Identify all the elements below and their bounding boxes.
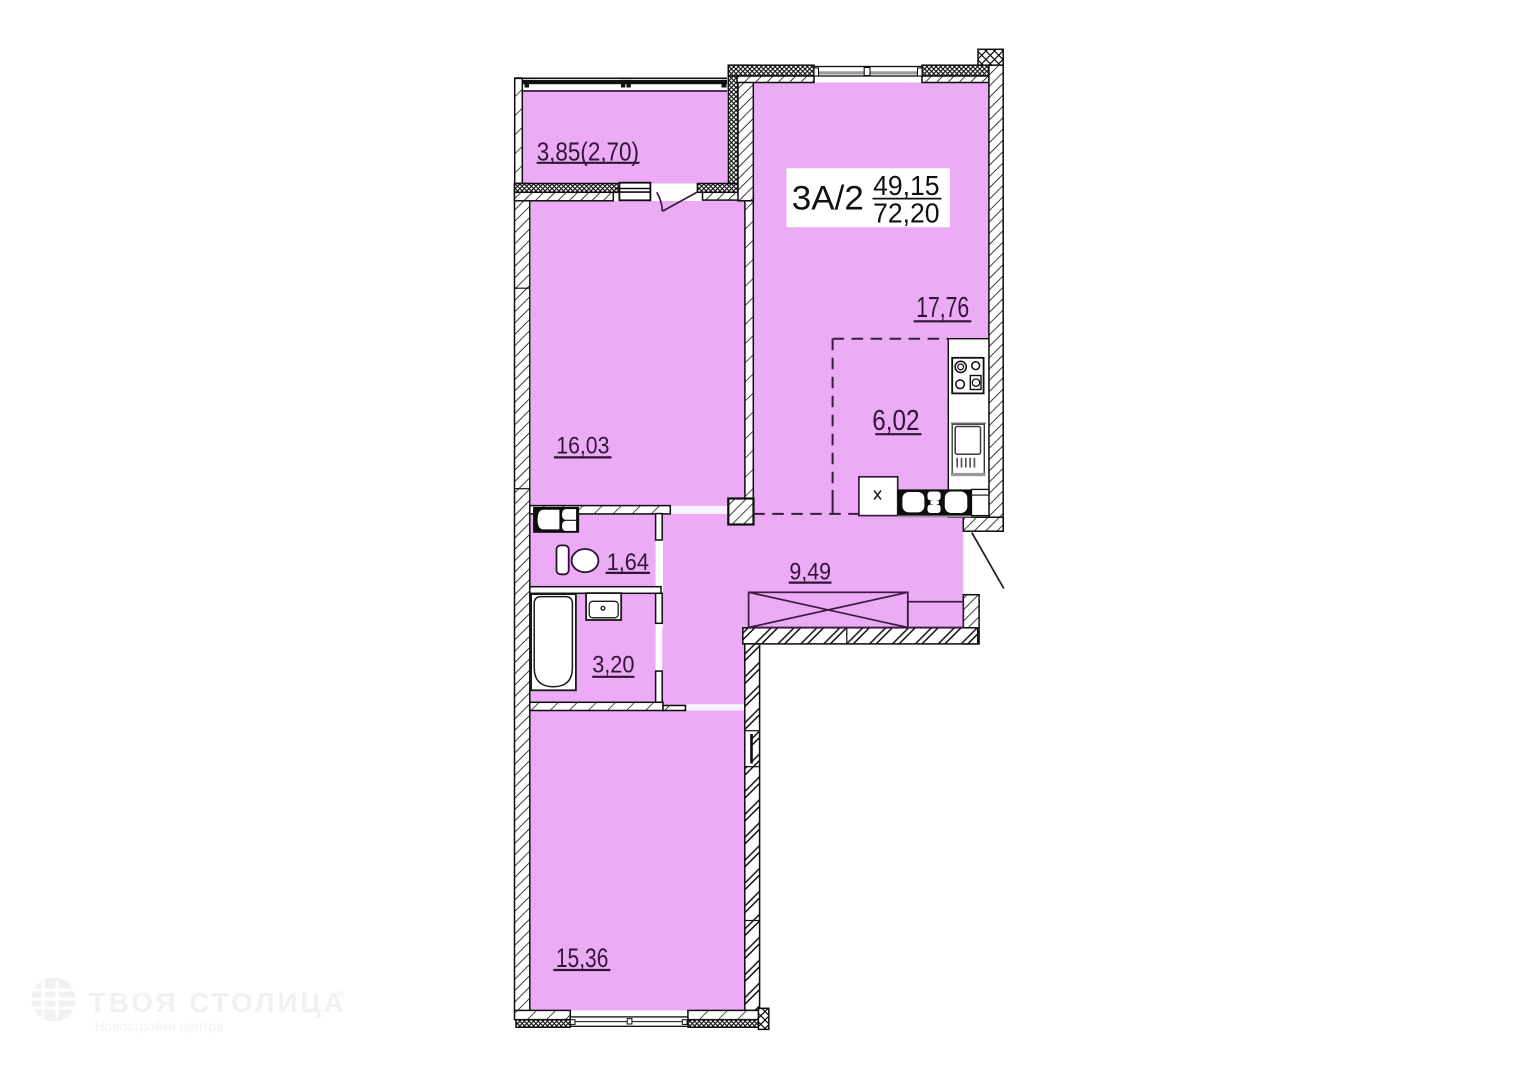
svg-text:15,36: 15,36 [556,943,609,973]
svg-text:17,76: 17,76 [916,292,969,324]
svg-text:Новостройки центра: Новостройки центра [95,1018,224,1034]
svg-text:72,20: 72,20 [873,198,940,229]
svg-text:3,20: 3,20 [592,651,634,678]
svg-text:ТВОЯ СТОЛИЦА: ТВОЯ СТОЛИЦА [89,987,347,1018]
svg-text:®: ® [336,989,344,1001]
svg-text:6,02: 6,02 [872,405,919,437]
svg-text:3А/2: 3А/2 [792,180,864,218]
svg-text:49,15: 49,15 [873,170,940,201]
svg-text:16,03: 16,03 [556,433,609,460]
